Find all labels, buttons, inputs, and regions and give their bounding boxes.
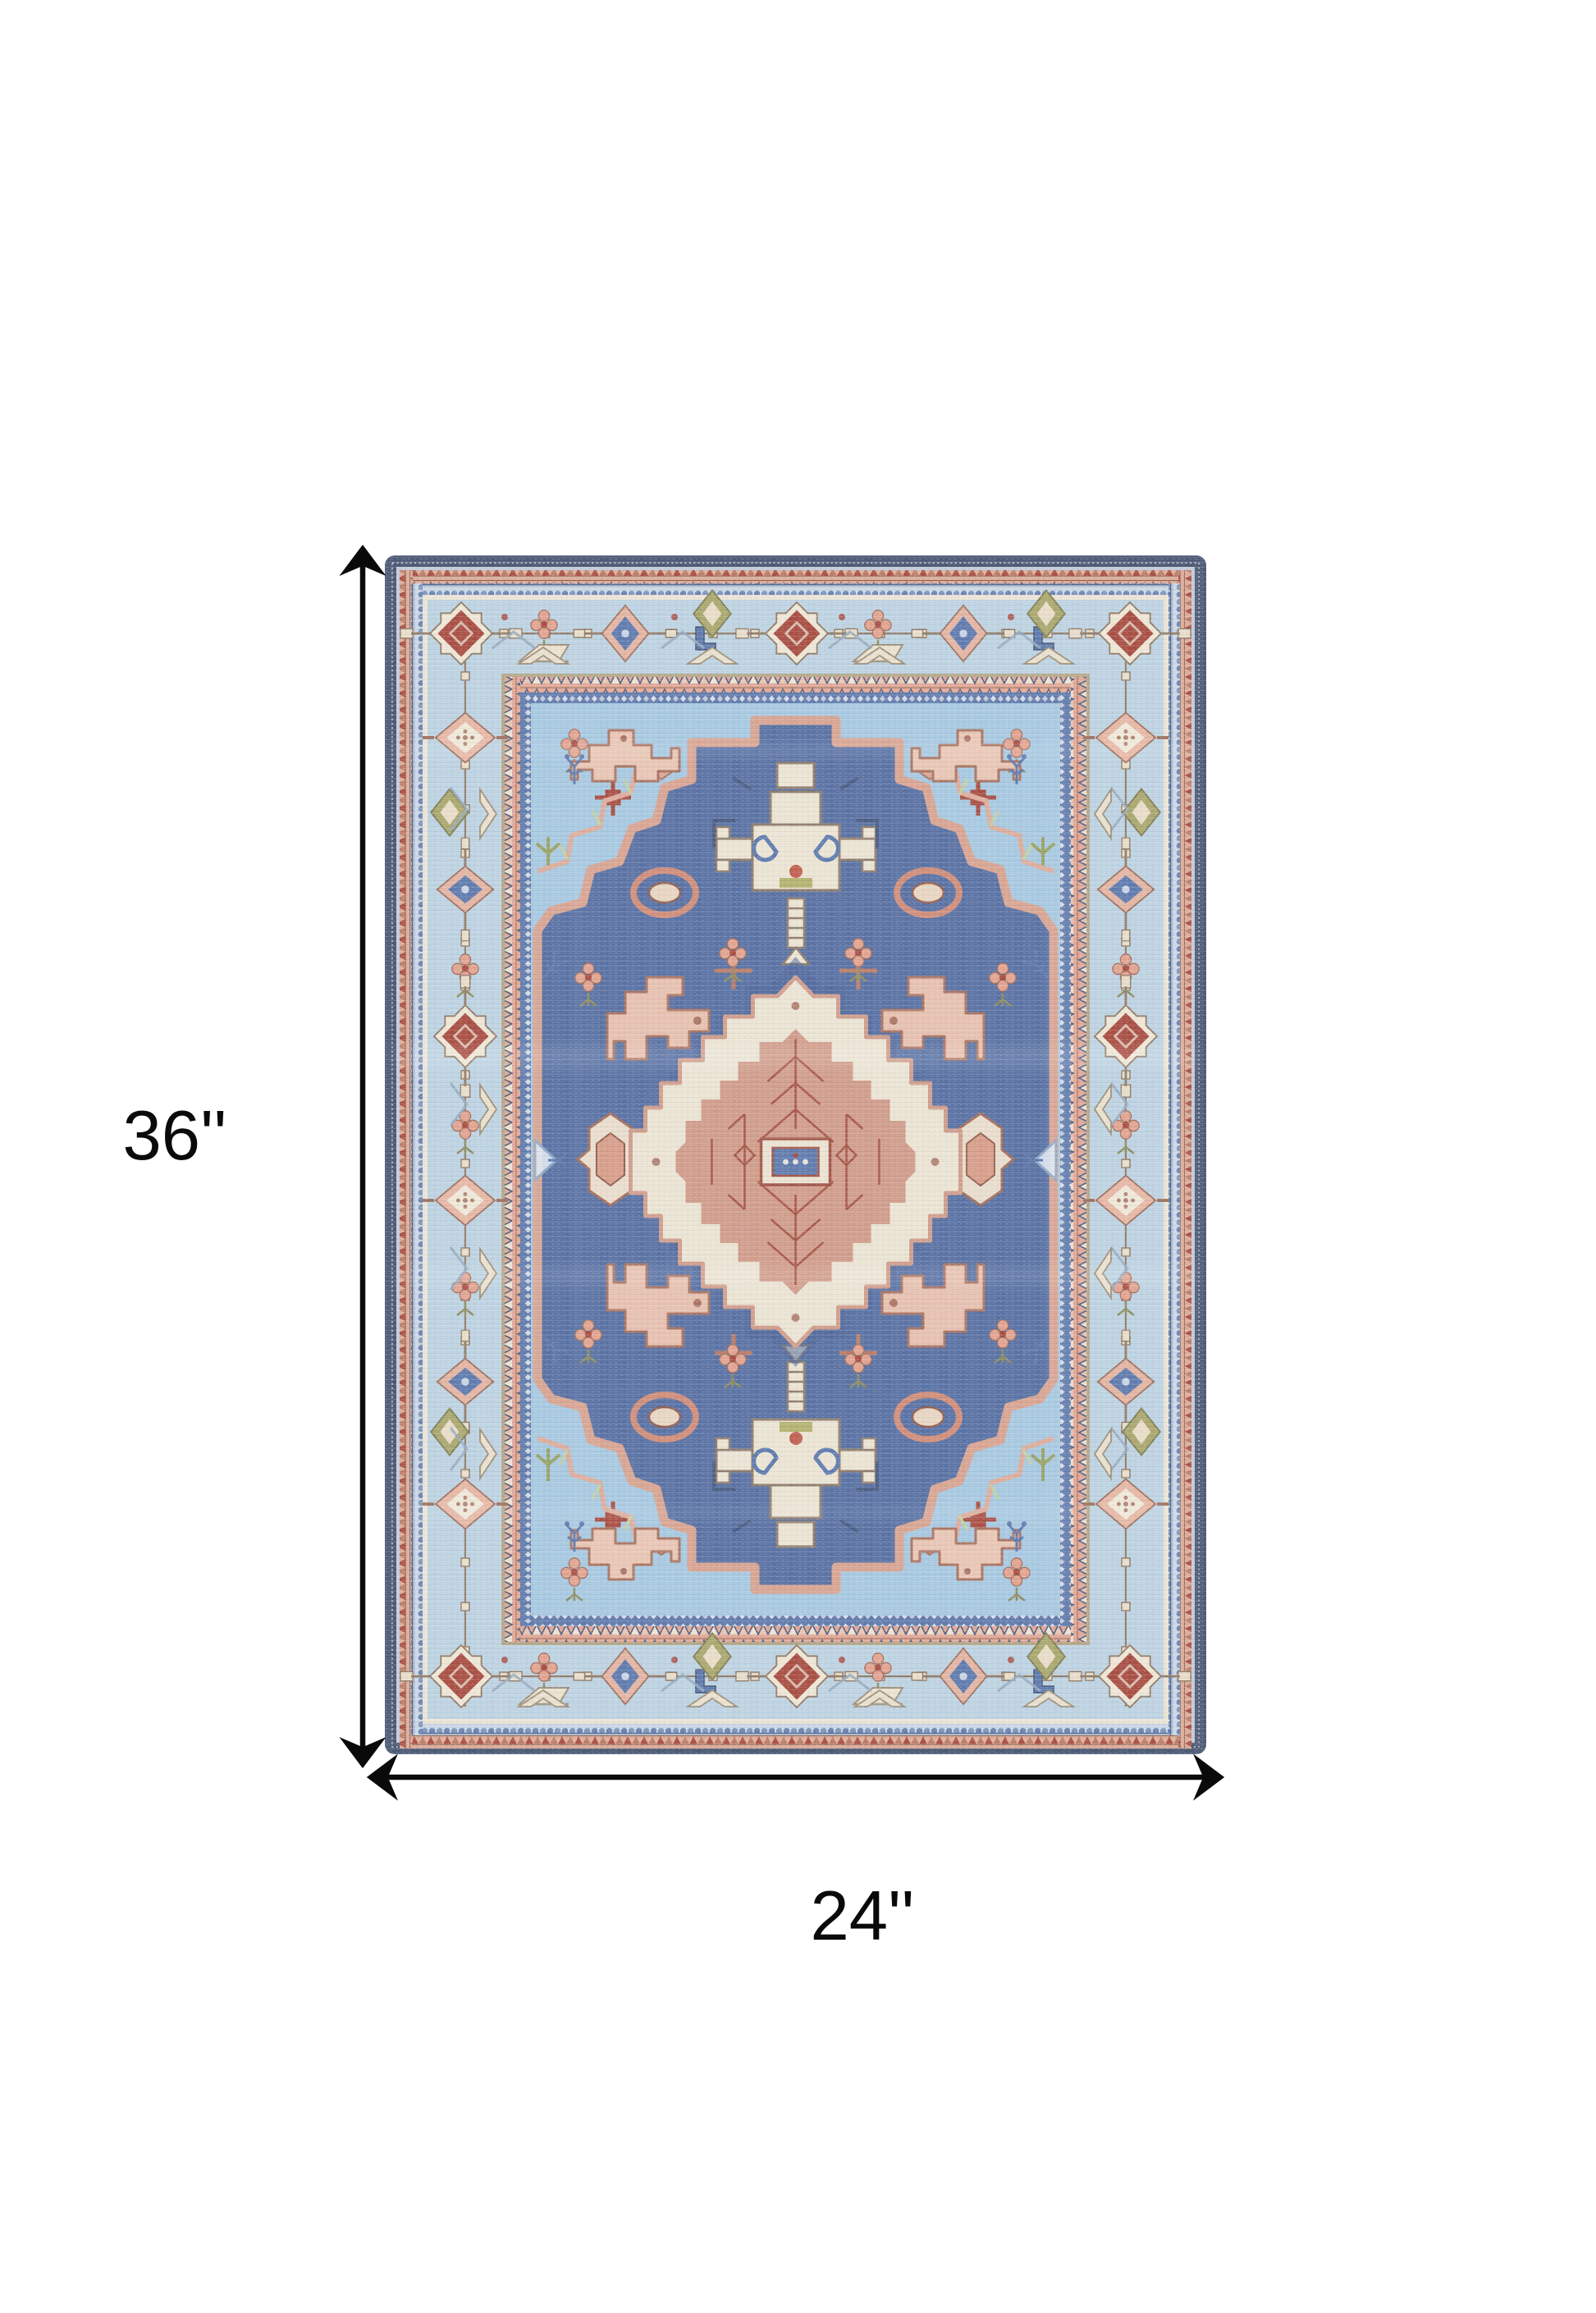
svg-text:36'': 36'' <box>122 1097 226 1175</box>
svg-text:24'': 24'' <box>810 1877 914 1955</box>
